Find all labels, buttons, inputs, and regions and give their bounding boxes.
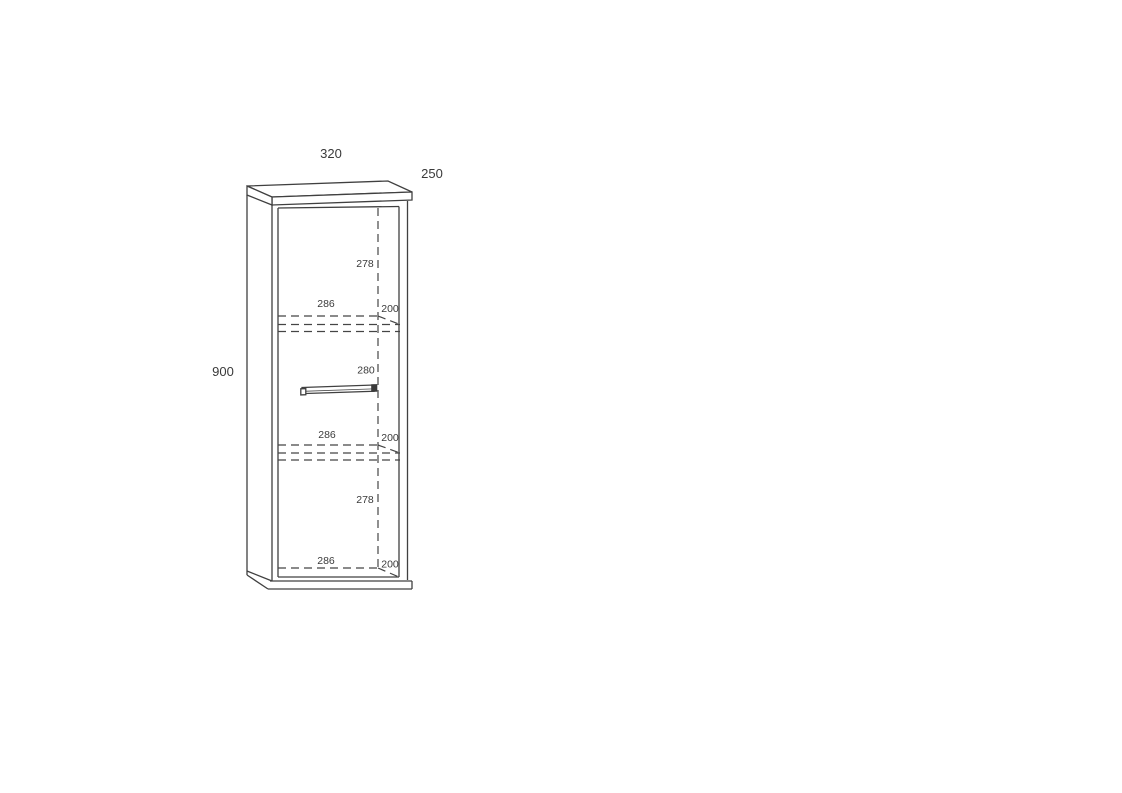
overall-height-label: 900 <box>212 364 234 379</box>
overall-width-label: 320 <box>320 146 342 161</box>
shelf1-width-label: 286 <box>317 298 335 310</box>
handle-right-cap <box>372 384 378 391</box>
overall-depth-label: 250 <box>421 166 443 181</box>
shelf2-depth-label: 200 <box>381 432 399 444</box>
shelf2-right-slant <box>378 445 400 453</box>
handle-left-cap <box>301 389 306 395</box>
hidden-shelf-2 <box>278 445 400 460</box>
drawing-page: 320 250 900 278 286 200 280 286 200 278 … <box>0 0 1122 793</box>
door-top-edge <box>278 207 399 209</box>
cabinet-technical-drawing: 320 250 900 278 286 200 280 286 200 278 … <box>0 0 1122 793</box>
side-bottom-edge <box>247 571 272 581</box>
top-section-height-label: 278 <box>356 258 374 270</box>
shelf1-depth-label: 200 <box>381 303 399 315</box>
hidden-shelf-1 <box>278 316 400 332</box>
bottom-section-height-label: 278 <box>356 494 374 506</box>
bottom-depth-label: 200 <box>381 559 399 571</box>
cabinet-top-panel <box>247 181 412 205</box>
middle-section-height-label: 280 <box>357 365 375 377</box>
door-handle <box>301 384 377 395</box>
shelf1-right-slant <box>378 316 400 325</box>
shelf2-width-label: 286 <box>318 429 336 441</box>
bottom-width-label: 286 <box>317 555 335 567</box>
base-left-slant <box>247 575 268 589</box>
cabinet-left-side-panel <box>247 195 272 581</box>
